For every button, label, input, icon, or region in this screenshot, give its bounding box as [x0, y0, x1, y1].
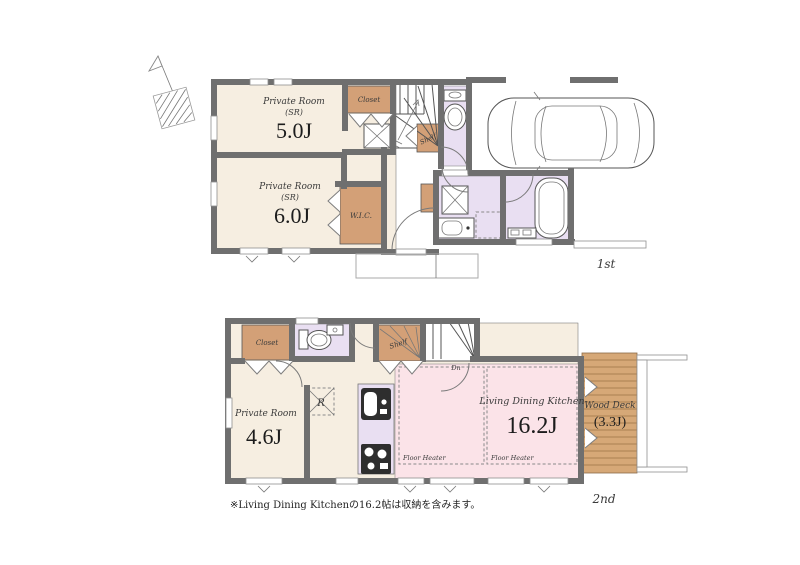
footnote: ※Living Dining Kitchenの16.2帖は収納を含みます。	[230, 498, 480, 511]
room6-area: 6.0J	[274, 203, 311, 228]
wood-deck-name: Wood Deck	[584, 401, 635, 411]
room5-name: Private Room	[262, 97, 325, 107]
room6-type: (SR)	[281, 193, 299, 202]
counter-square	[364, 124, 390, 148]
ldk-area: 16.2J	[506, 413, 557, 439]
closet-1f-label: Closet	[358, 96, 381, 104]
wall-segment-carport-left	[472, 77, 506, 83]
stairs-down-label: Dn	[450, 364, 460, 372]
floor1-label: 1st	[597, 257, 616, 271]
north-arrow-icon	[149, 56, 195, 129]
wood-deck	[582, 353, 687, 473]
deck-rail-bottom	[637, 467, 687, 472]
room46-name: Private Room	[234, 409, 297, 419]
vanity-sink	[438, 218, 474, 238]
room5-area: 5.0J	[276, 118, 313, 143]
second-floor-plan: R	[226, 318, 687, 506]
bathtub	[535, 178, 568, 238]
bath-counter	[508, 228, 536, 238]
room6-name: Private Room	[258, 182, 321, 192]
floor-plan-page: Private Room (SR) 5.0J Private Room (SR)…	[0, 0, 800, 565]
side-fence	[574, 241, 646, 248]
entrance-porch	[356, 254, 478, 278]
stove	[361, 444, 391, 474]
wic-label: W.I.C.	[350, 211, 372, 220]
floor-heater-right-label: Floor Heater	[490, 454, 534, 462]
closet-2f-label: Closet	[256, 339, 279, 347]
toilet-fixture-1f	[444, 90, 466, 130]
car-illustration	[488, 92, 654, 174]
wall-segment-carport-right	[570, 77, 618, 83]
first-floor-plan: Private Room (SR) 5.0J Private Room (SR)…	[211, 77, 654, 278]
floor-plan-canvas: Private Room (SR) 5.0J Private Room (SR)…	[0, 0, 800, 565]
wood-deck-area: (3.3J)	[594, 415, 627, 430]
kitchen-counter	[358, 384, 394, 474]
room46-area: 4.6J	[246, 424, 283, 449]
floor2-label: 2nd	[591, 492, 615, 506]
washing-machine-pan	[442, 186, 468, 214]
floor-heater-left-label: Floor Heater	[402, 454, 446, 462]
deck-rail-top	[637, 355, 687, 360]
deck-rail-right	[637, 360, 647, 467]
refrigerator-label: R	[316, 398, 325, 409]
ldk-name: Living Dining Kitchen	[478, 396, 584, 407]
room5-type: (SR)	[285, 108, 303, 117]
